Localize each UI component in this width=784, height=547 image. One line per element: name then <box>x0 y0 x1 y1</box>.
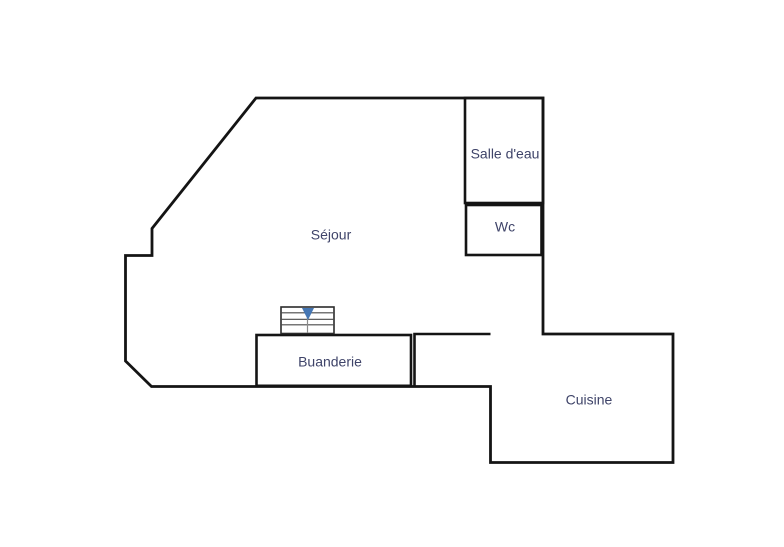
svg-text:Wc: Wc <box>495 219 515 235</box>
svg-text:Séjour: Séjour <box>311 227 352 243</box>
svg-text:Buanderie: Buanderie <box>298 353 362 369</box>
svg-text:Cuisine: Cuisine <box>566 392 613 408</box>
svg-text:Salle d'eau: Salle d'eau <box>471 146 540 162</box>
